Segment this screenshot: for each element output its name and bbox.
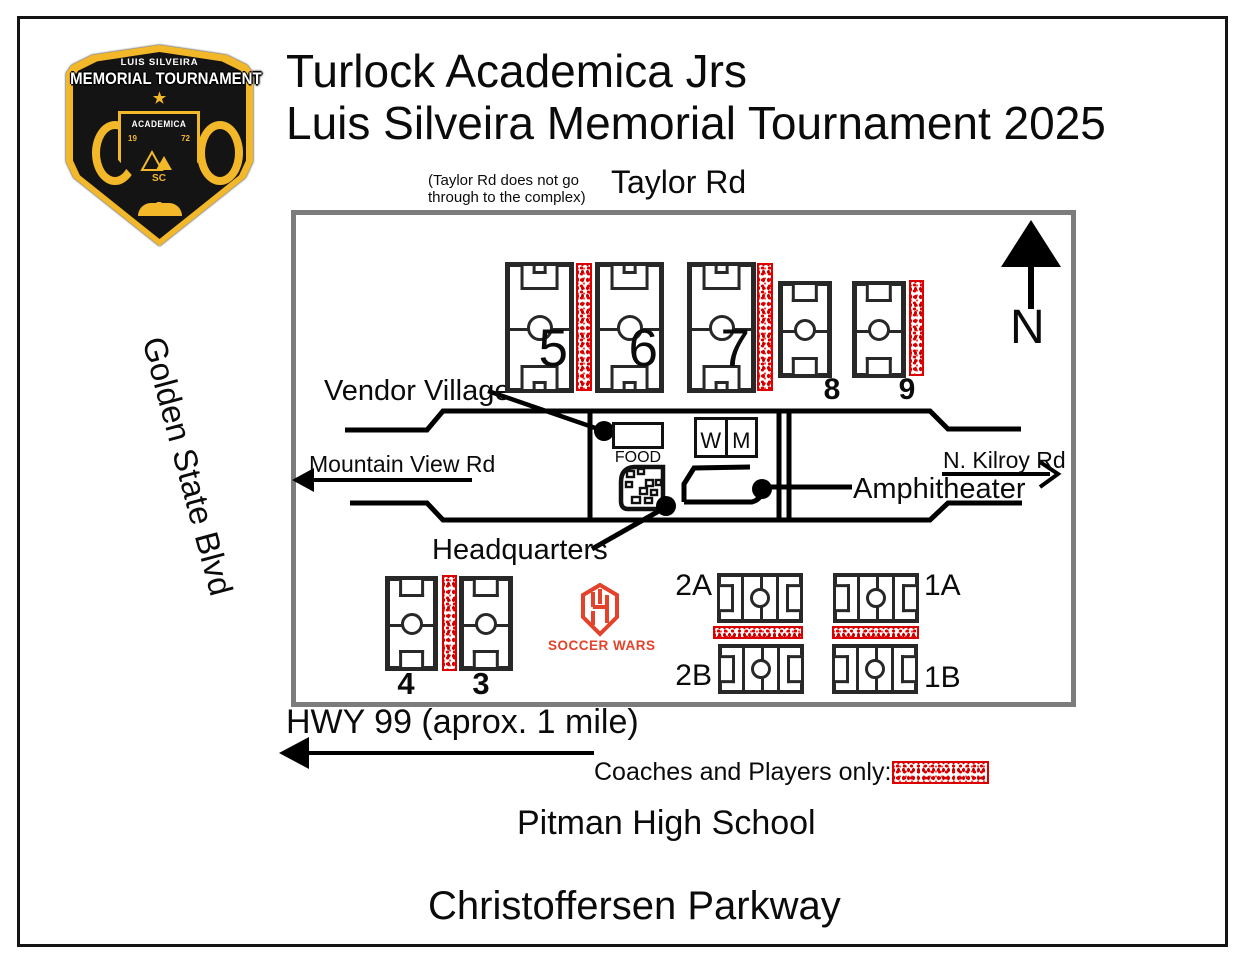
soccer-wars-logo [577,580,623,643]
field-marking [742,647,745,691]
badge-subtitle: LUIS SILVEIRA [66,57,253,68]
tournament-badge-logo: LUIS SILVEIRA MEMORIAL TOURNAMENT ★ ACAD… [66,45,253,246]
amphitheater-label: Amphitheater [853,474,1026,504]
field-5: 5 [505,262,574,393]
food-label: FOOD [606,450,670,467]
field-1b [832,644,918,694]
field-8-number: 8 [814,374,850,406]
christoffersen-parkway-label: Christoffersen Parkway [428,885,841,927]
field-marking [399,580,425,597]
field-marking [777,647,780,691]
badge-star-icon: ★ [66,89,253,107]
crest-title: ACADEMICA [124,119,194,129]
coaches-strip-2 [713,626,803,639]
page-title-line2: Luis Silveira Memorial Tournament 2025 [286,99,1106,147]
field-marking [721,655,735,683]
mountain-view-rd-label: Mountain View Rd [309,452,495,476]
field-4-number: 4 [388,668,424,701]
field-marking [533,265,547,274]
food-vendor-building [612,422,664,449]
field-marking [857,576,860,620]
crest-triangle-motif-icon [136,144,176,172]
field-marking [866,285,892,302]
tournament-map-page: LUIS SILVEIRA MEMORIAL TOURNAMENT ★ ACAD… [0,0,1243,960]
taylor-rd-note-line1: (Taylor Rd does not go [428,172,586,189]
field-marking [835,655,849,683]
field-marking [475,613,497,635]
field-2a-label: 2A [658,570,712,602]
legend-red-swatch [892,761,989,784]
coaches-strip-9 [909,280,924,376]
field-marking [856,647,859,691]
field-1a [833,573,919,623]
field-marking [715,381,729,390]
n-kilroy-rd-label: N. Kilroy Rd [943,448,1066,472]
field-9-number: 9 [889,374,925,406]
field-1a-label: 1A [924,570,961,602]
field-marking [533,381,547,390]
field-marking [891,647,894,691]
field-marking [866,357,892,374]
field-marking [786,584,800,612]
hwy99-label: HWY 99 (aprox. 1 mile) [286,705,639,741]
field-3 [459,576,513,671]
field-1b-label: 1B [924,662,961,694]
field-marking [720,584,734,612]
compass-n-label: N [1010,303,1045,353]
soccer-wars-emblem-icon [577,580,623,638]
field-marking [623,381,637,390]
field-marking [836,584,850,612]
page-title-line1: Turlock Academica Jrs [286,47,747,95]
field-marking [399,650,425,667]
field-marking [623,265,637,274]
field-marking [473,650,499,667]
field-2a [717,573,803,623]
taylor-rd-note-line2: through to the complex) [428,189,586,206]
field-marking [787,655,801,683]
field-marking [401,613,423,635]
field-8 [778,281,832,378]
field-number: 7 [721,328,748,369]
field-2b [718,644,804,694]
coaches-strip-5 [576,263,592,391]
field-marking [901,655,915,683]
field-marking [794,319,816,341]
field-marking [902,584,916,612]
field-marking [751,659,771,679]
crest-year-left: 19 [128,134,137,143]
trophy-handle-right [197,121,243,185]
trophy-base [138,203,182,216]
headquarters-label: Headquarters [432,535,608,565]
field-3-number: 3 [463,668,499,701]
field-marking [792,357,818,374]
taylor-rd-label: Taylor Rd [611,166,746,200]
coaches-strip-7 [757,263,773,391]
field-marking [892,576,895,620]
field-2b-label: 2B [658,660,712,692]
field-marking [792,285,818,302]
vendor-village-label: Vendor Village [324,376,511,406]
coaches-strip-1 [832,626,919,639]
field-number: 5 [539,328,566,369]
restroom-men-label: M [728,420,756,455]
restrooms-building: W M [694,417,758,458]
taylor-rd-note: (Taylor Rd does not go through to the co… [428,172,586,206]
crest-year-right: 72 [181,134,190,143]
field-marking [865,659,885,679]
field-marking [473,580,499,597]
badge-title: MEMORIAL TOURNAMENT [70,69,249,89]
field-marking [702,266,741,290]
legend-label: Coaches and Players only: [594,759,891,785]
pitman-high-school-label: Pitman High School [517,806,816,842]
restroom-women-label: W [697,420,728,455]
soccer-wars-wordmark: SOCCER WARS [548,639,652,653]
field-4 [385,576,438,671]
field-marking [520,266,559,290]
field-marking [741,576,744,620]
field-marking [868,319,890,341]
field-marking [776,576,779,620]
field-marking [750,588,770,608]
field-7: 7 [687,262,756,393]
field-marking [866,588,886,608]
field-9 [852,281,906,378]
field-6: 6 [595,262,664,393]
field-number: 6 [629,328,656,369]
field-marking [610,266,649,290]
coaches-strip-43 [442,575,457,671]
field-marking [715,265,729,274]
